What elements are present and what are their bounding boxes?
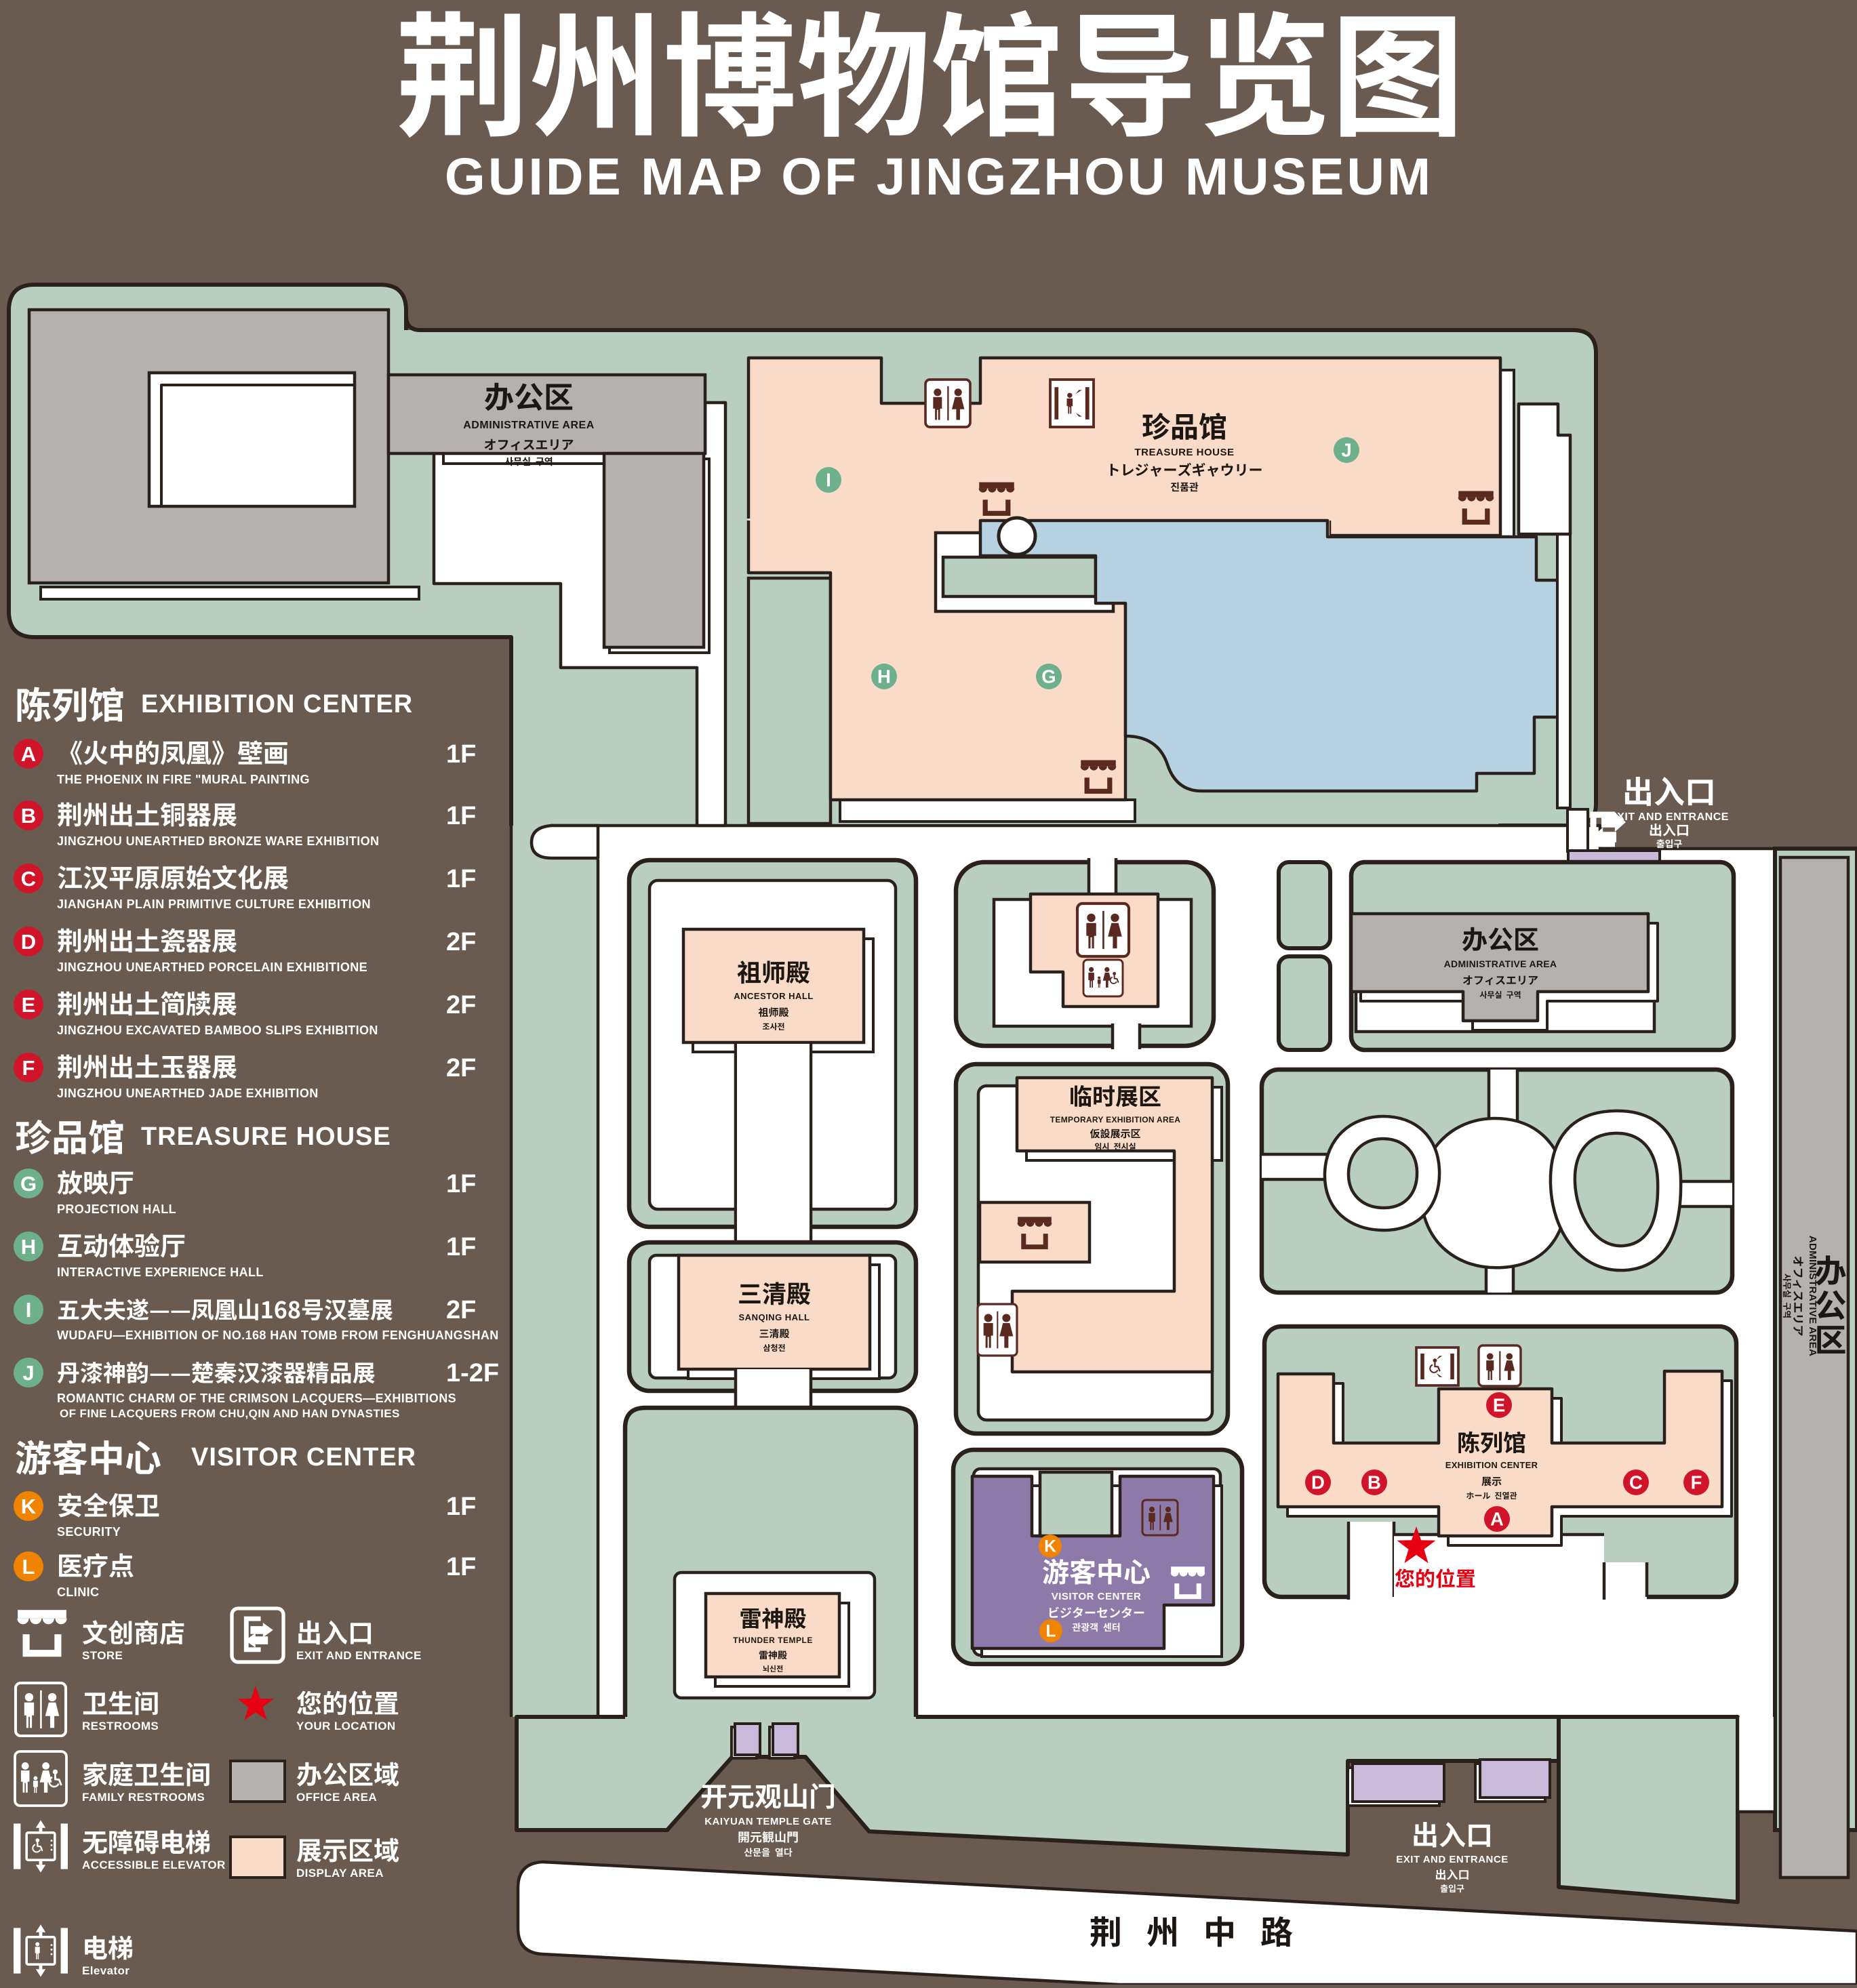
svg-text:H: H <box>877 666 891 687</box>
svg-text:OF FINE LACQUERS FROM CHU,QIN: OF FINE LACQUERS FROM CHU,QIN AND HAN DY… <box>60 1407 400 1420</box>
svg-text:1F: 1F <box>446 802 476 830</box>
svg-text:2F: 2F <box>446 1054 476 1082</box>
svg-text:L: L <box>1045 1623 1056 1641</box>
svg-text:OFFICE AREA: OFFICE AREA <box>296 1791 377 1804</box>
svg-text:DISPLAY AREA: DISPLAY AREA <box>296 1867 384 1880</box>
svg-text:TREASURE HOUSE: TREASURE HOUSE <box>1134 447 1234 458</box>
svg-text:SECURITY: SECURITY <box>57 1525 121 1539</box>
svg-text:JIANGHAN PLAIN PRIMITIVE CULTU: JIANGHAN PLAIN PRIMITIVE CULTURE EXHIBIT… <box>57 897 371 911</box>
svg-text:D: D <box>21 930 36 954</box>
svg-text:RESTROOMS: RESTROOMS <box>82 1720 159 1732</box>
svg-text:THUNDER TEMPLE: THUNDER TEMPLE <box>733 1636 813 1645</box>
svg-text:I: I <box>26 1298 32 1322</box>
svg-text:ACCESSIBLE ELEVATOR: ACCESSIBLE ELEVATOR <box>82 1859 226 1871</box>
svg-text:EXHIBITION CENTER: EXHIBITION CENTER <box>1445 1460 1538 1470</box>
svg-text:EXHIBITION CENTER: EXHIBITION CENTER <box>141 690 413 718</box>
svg-text:JINGZHOU UNEARTHED BRONZE WARE: JINGZHOU UNEARTHED BRONZE WARE EXHIBITIO… <box>57 834 379 848</box>
svg-text:A: A <box>21 742 36 766</box>
svg-text:J: J <box>22 1361 34 1385</box>
svg-text:JINGZHOU UNEARTHED PORCELAIN E: JINGZHOU UNEARTHED PORCELAIN EXHIBITIONE <box>57 960 367 974</box>
svg-text:1F: 1F <box>446 1493 476 1521</box>
svg-text:A: A <box>1490 1509 1504 1530</box>
svg-text:ADMINISTRATIVE AREA: ADMINISTRATIVE AREA <box>1444 958 1557 969</box>
svg-text:ADMINISTRATIVE AREA: ADMINISTRATIVE AREA <box>463 420 595 431</box>
svg-text:ANCESTOR HALL: ANCESTOR HALL <box>734 991 813 1001</box>
svg-text:C: C <box>1629 1472 1643 1493</box>
svg-text:1F: 1F <box>446 865 476 893</box>
svg-text:I: I <box>826 470 831 491</box>
svg-text:TREASURE HOUSE: TREASURE HOUSE <box>141 1122 391 1151</box>
svg-text:2F: 2F <box>446 1296 476 1324</box>
svg-text:B: B <box>1367 1472 1381 1493</box>
svg-text:VISITOR CENTER: VISITOR CENTER <box>191 1443 416 1472</box>
svg-text:L: L <box>22 1555 35 1579</box>
svg-text:K: K <box>1044 1538 1056 1556</box>
svg-text:EXIT AND ENTRANCE: EXIT AND ENTRANCE <box>296 1649 422 1662</box>
svg-text:WUDAFU—EXHIBITION OF NO.168 HA: WUDAFU—EXHIBITION OF NO.168 HAN TOMB FRO… <box>57 1328 499 1342</box>
svg-text:G: G <box>20 1172 37 1196</box>
svg-text:D: D <box>1311 1472 1325 1493</box>
svg-text:ADMINISTRATIVE AREA: ADMINISTRATIVE AREA <box>1807 1236 1818 1356</box>
svg-text:TEMPORARY EXHIBITION AREA: TEMPORARY EXHIBITION AREA <box>1050 1115 1180 1124</box>
svg-text:1F: 1F <box>446 740 476 769</box>
svg-text:THE PHOENIX IN FIRE "MURAL PAI: THE PHOENIX IN FIRE "MURAL PAINTING <box>57 773 310 786</box>
svg-text:1F: 1F <box>446 1170 476 1198</box>
svg-text:JINGZHOU EXCAVATED BAMBOO SLIP: JINGZHOU EXCAVATED BAMBOO SLIPS EXHIBITI… <box>57 1023 378 1037</box>
svg-text:H: H <box>21 1235 36 1259</box>
svg-text:B: B <box>21 804 36 828</box>
svg-text:KAIYUAN TEMPLE GATE: KAIYUAN TEMPLE GATE <box>704 1816 832 1827</box>
svg-text:CLINIC: CLINIC <box>57 1585 99 1599</box>
svg-text:F: F <box>1691 1472 1702 1493</box>
svg-text:2F: 2F <box>446 991 476 1019</box>
svg-text:FAMILY RESTROOMS: FAMILY RESTROOMS <box>82 1791 205 1804</box>
svg-text:SANQING HALL: SANQING HALL <box>739 1312 810 1322</box>
svg-text:E: E <box>1493 1395 1505 1416</box>
svg-text:JINGZHOU UNEARTHED JADE EXHIBI: JINGZHOU UNEARTHED JADE EXHIBITION <box>57 1087 319 1100</box>
svg-text:EXIT AND ENTRANCE: EXIT AND ENTRANCE <box>1396 1854 1508 1865</box>
svg-text:VISITOR CENTER: VISITOR CENTER <box>1052 1591 1142 1602</box>
svg-text:C: C <box>21 867 36 891</box>
svg-text:G: G <box>1041 666 1056 687</box>
svg-text:1F: 1F <box>446 1553 476 1581</box>
svg-text:EXIT AND ENTRANCE: EXIT AND ENTRANCE <box>1610 811 1729 823</box>
svg-text:E: E <box>22 993 36 1017</box>
svg-text:PROJECTION HALL: PROJECTION HALL <box>57 1202 176 1216</box>
svg-text:J: J <box>1341 440 1351 461</box>
svg-text:K: K <box>21 1495 37 1518</box>
svg-text:INTERACTIVE EXPERIENCE HALL: INTERACTIVE EXPERIENCE HALL <box>57 1265 264 1279</box>
svg-text:STORE: STORE <box>82 1649 123 1662</box>
svg-text:2F: 2F <box>446 928 476 956</box>
svg-text:F: F <box>22 1056 35 1080</box>
svg-text:ROMANTIC CHARM OF THE CRIMSON: ROMANTIC CHARM OF THE CRIMSON LACQUERS—E… <box>57 1392 456 1405</box>
svg-text:GUIDE MAP OF JINGZHOU MUSEUM: GUIDE MAP OF JINGZHOU MUSEUM <box>445 148 1433 206</box>
svg-text:1-2F: 1-2F <box>446 1359 499 1387</box>
svg-text:YOUR LOCATION: YOUR LOCATION <box>296 1720 396 1732</box>
svg-text:Elevator: Elevator <box>82 1964 129 1977</box>
svg-text:1F: 1F <box>446 1233 476 1261</box>
